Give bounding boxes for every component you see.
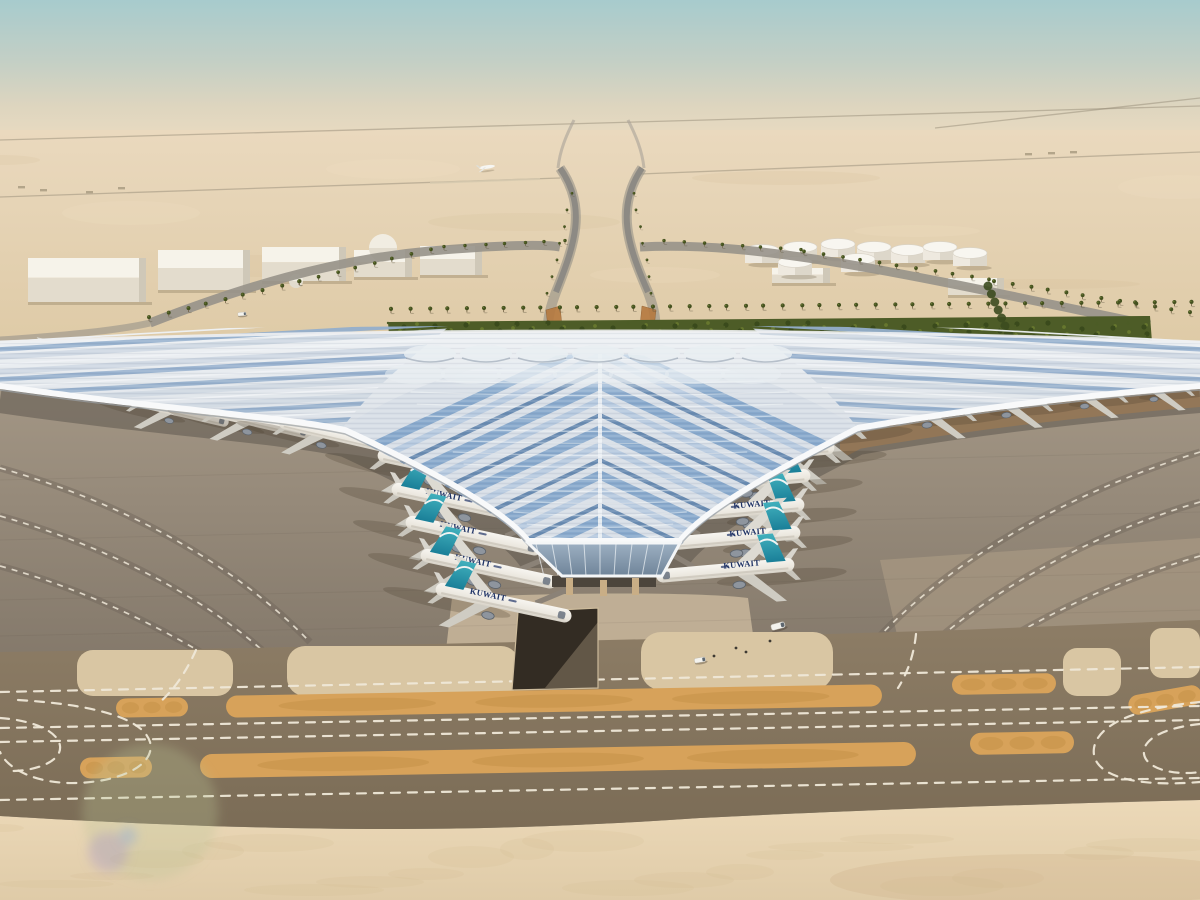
sand-patch <box>522 830 644 852</box>
engine <box>922 422 933 429</box>
person <box>713 655 716 658</box>
sand-patch <box>0 880 114 888</box>
sand-patch <box>204 834 334 852</box>
scene-canvas: KUWAITKUWAITKUWAITKUWAITKUWAITKUWAITKUWA… <box>0 0 1200 900</box>
engine <box>1080 403 1089 409</box>
desert-patch <box>590 267 720 283</box>
desert-patch <box>326 159 460 179</box>
sand-island <box>1150 628 1200 678</box>
distant-speck <box>18 186 25 188</box>
sand-patch <box>840 834 954 844</box>
distant-speck <box>1025 153 1032 155</box>
sand-island <box>287 646 519 696</box>
engine <box>1001 412 1011 418</box>
orange-strip <box>116 697 188 717</box>
sand-patch <box>388 868 464 880</box>
fuel-tank <box>953 248 992 271</box>
distant-speck <box>118 187 125 189</box>
tip-column <box>632 578 639 595</box>
white-building <box>28 258 152 305</box>
person <box>745 651 748 654</box>
orange-strip <box>970 731 1074 755</box>
desert-patch <box>692 171 880 185</box>
person <box>769 640 772 643</box>
desert-patch <box>428 213 620 231</box>
tree <box>987 290 996 299</box>
sand-island <box>641 632 833 690</box>
person <box>735 647 738 650</box>
sand-island <box>1063 648 1121 696</box>
tree <box>984 282 993 291</box>
sky <box>0 0 1200 135</box>
distant-speck <box>1048 152 1055 154</box>
tree <box>990 298 999 307</box>
lens-flare <box>82 744 218 880</box>
desert-patch <box>62 201 200 225</box>
tree <box>994 306 1003 315</box>
desert-patch <box>854 225 980 237</box>
lens-flare-circle <box>119 827 137 845</box>
airport-aerial-rendering: KUWAITKUWAITKUWAITKUWAITKUWAITKUWAITKUWA… <box>0 0 1200 900</box>
sand-patch <box>706 864 774 880</box>
tree <box>1001 322 1010 331</box>
tree <box>997 314 1006 323</box>
distant-speck <box>86 191 93 193</box>
tip-column <box>600 580 607 596</box>
engine <box>1149 396 1158 402</box>
orange-strip <box>952 673 1056 695</box>
distant-speck <box>40 189 47 191</box>
distant-speck <box>1070 151 1077 153</box>
tip-column <box>566 578 573 595</box>
desert-horizon <box>0 130 1200 350</box>
